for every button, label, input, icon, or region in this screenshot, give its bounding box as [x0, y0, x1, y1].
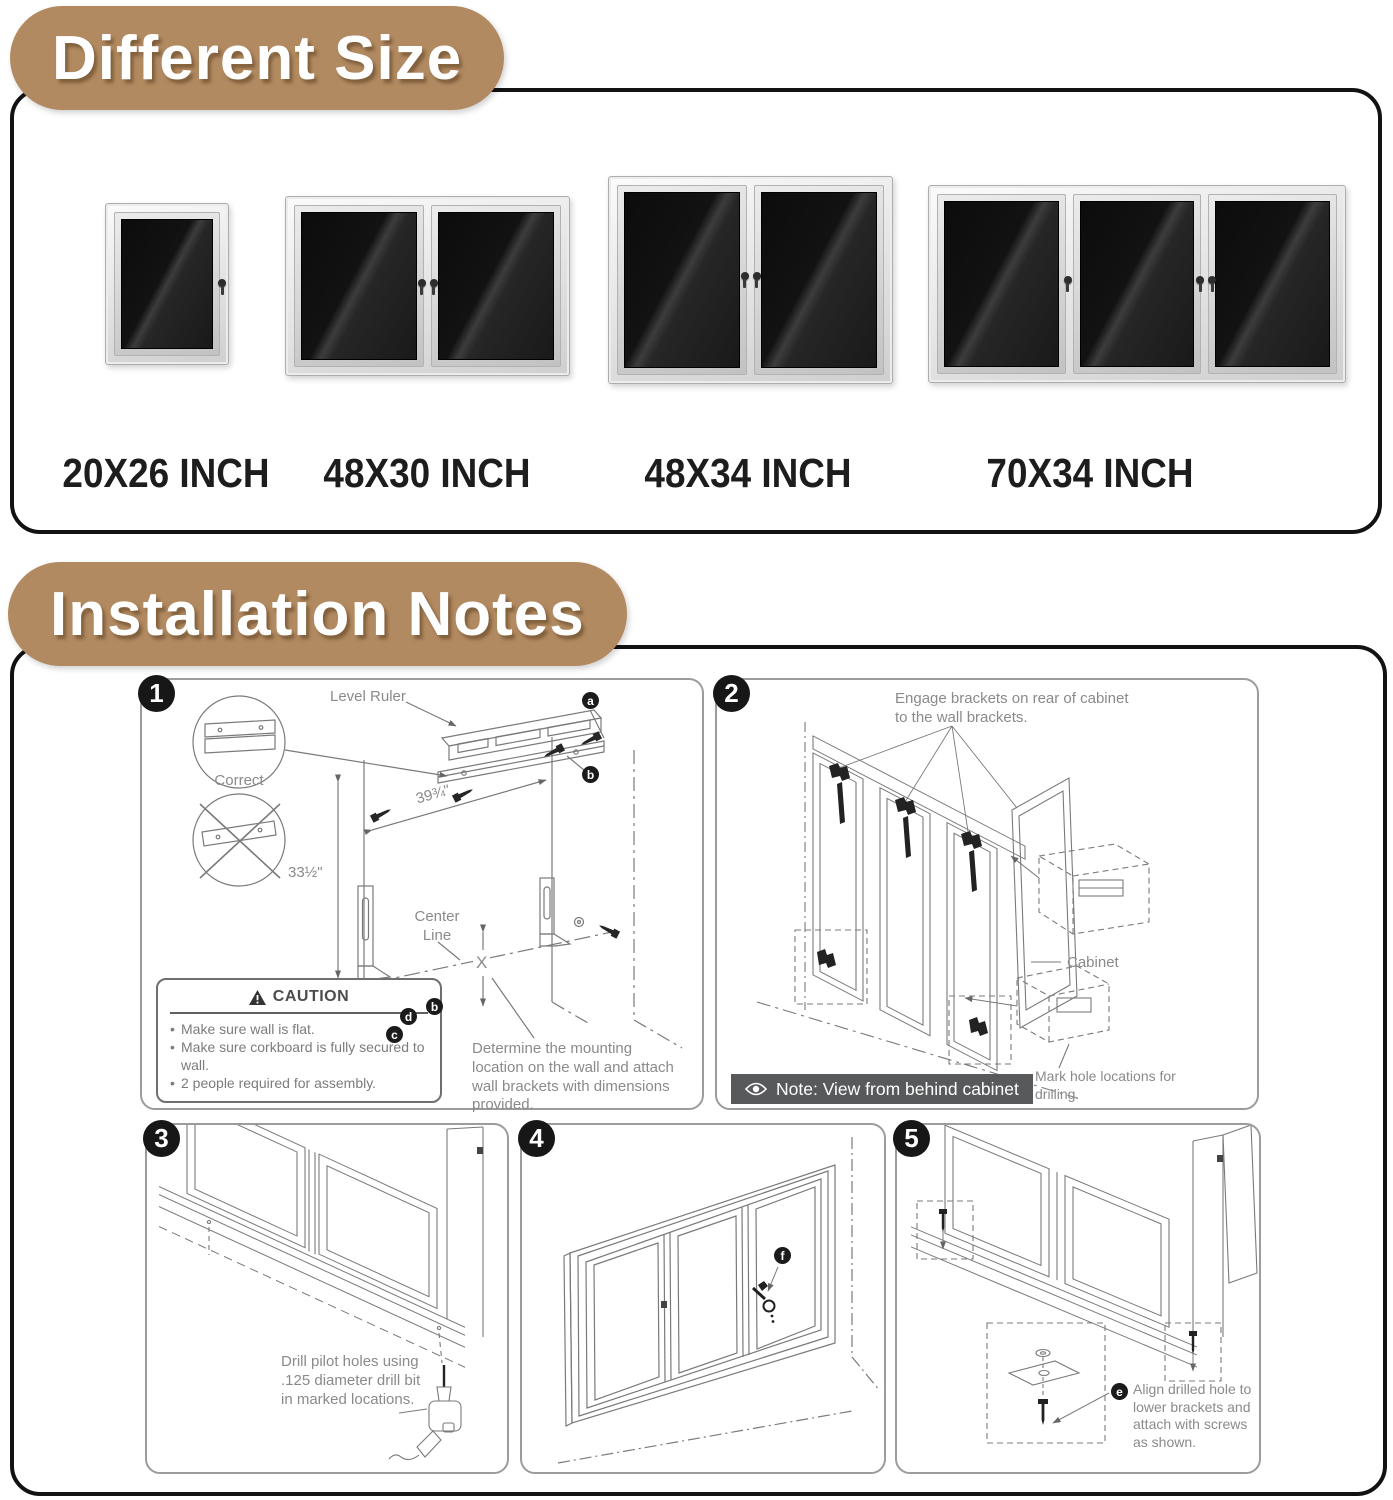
different-size-title-text: Different Size: [52, 23, 462, 94]
callout-c: c: [386, 1026, 403, 1043]
different-size-title: Different Size: [10, 6, 504, 110]
size-label-70x34: 70X34 INCH: [986, 450, 1193, 497]
letter-board-felt: [761, 192, 877, 368]
size-label-48x34: 48X34 INCH: [644, 450, 851, 497]
step1-number: 1: [138, 675, 175, 712]
step2-instruction: Engage brackets on rear of cabinet to th…: [895, 690, 1135, 728]
callout-b2: b: [426, 998, 443, 1015]
board-48x34: [608, 176, 893, 384]
mark-holes-instruction: Mark hole locations for drilling.: [1035, 1068, 1195, 1103]
cabinet-label: Cabinet: [1067, 954, 1119, 973]
callout-d: d: [400, 1008, 417, 1025]
step3-instruction: Drill pilot holes using .125 diameter dr…: [281, 1353, 421, 1409]
step5-instruction: Align drilled hole to lower brackets and…: [1133, 1381, 1255, 1451]
callout-f: f: [774, 1247, 791, 1264]
level-ruler-label: Level Ruler: [330, 688, 406, 707]
step2-number: 2: [713, 675, 750, 712]
board-door: [754, 185, 884, 375]
step3-panel: Drill pilot holes using .125 diameter dr…: [145, 1123, 509, 1474]
letter-board-felt: [1080, 201, 1195, 367]
step3-number: 3: [143, 1120, 180, 1157]
eye-icon: [745, 1082, 767, 1096]
step3-diagram: [147, 1125, 507, 1472]
board-70x34: [928, 185, 1346, 383]
installation-notes-title: Installation Notes: [8, 562, 627, 666]
letter-board-felt: [301, 212, 417, 360]
size-label-20x26: 20X26 INCH: [62, 450, 269, 497]
product-infographic: Different Size 20X26 INCH 48X30 INCH 48X…: [0, 0, 1393, 1500]
letter-board-felt: [1215, 201, 1330, 367]
board-door: [114, 212, 220, 356]
key-lock-icon: [430, 279, 438, 287]
divider: [170, 1012, 428, 1014]
step4-panel: f: [520, 1123, 886, 1474]
step2-panel: Engage brackets on rear of cabinet to th…: [715, 678, 1259, 1110]
board-door: [617, 185, 747, 375]
callout-a: a: [582, 692, 599, 709]
step5-number: 5: [893, 1120, 930, 1157]
board-20x26: [105, 203, 229, 365]
key-lock-icon: [753, 272, 761, 280]
caution-item: 2 people required for assembly.: [170, 1075, 428, 1093]
caution-item: Make sure corkboard is fully secured to …: [170, 1039, 428, 1075]
step1-panel: Level Ruler Correct 39¾" 33½" Center Lin…: [140, 678, 704, 1110]
step2-diagram: [717, 680, 1257, 1108]
board-door: [431, 205, 561, 367]
letter-board-felt: [438, 212, 554, 360]
installation-notes-title-text: Installation Notes: [50, 579, 585, 650]
view-note-text: Note: View from behind cabinet: [776, 1079, 1019, 1100]
key-lock-icon: [741, 272, 749, 280]
board-door: [1073, 194, 1202, 374]
board-door: [1208, 194, 1337, 374]
height-dimension: 33½": [288, 864, 323, 883]
board-door: [937, 194, 1066, 374]
correct-label: Correct: [204, 772, 274, 791]
letter-board-felt: [944, 201, 1059, 367]
step4-diagram: [522, 1125, 884, 1472]
board-door: [294, 205, 424, 367]
size-label-48x30: 48X30 INCH: [323, 450, 530, 497]
callout-e: e: [1111, 1383, 1128, 1400]
caution-title: CAUTION: [273, 988, 349, 1006]
callout-b: b: [582, 766, 599, 783]
bracket-icons: [817, 763, 988, 1036]
step4-number: 4: [518, 1120, 555, 1157]
key-lock-icon: [1196, 276, 1204, 284]
key-lock-icon: [218, 279, 226, 287]
board-48x30: [285, 196, 570, 376]
x-mark-label: X: [473, 952, 490, 973]
letter-board-felt: [624, 192, 740, 368]
warning-icon: [249, 990, 266, 1005]
step1-instruction: Determine the mounting location on the w…: [472, 1040, 680, 1115]
step5-panel: e Align drilled hole to lower brackets a…: [895, 1123, 1261, 1474]
view-note-bar: Note: View from behind cabinet: [731, 1074, 1033, 1104]
center-line-label: Center Line: [400, 908, 474, 946]
letter-board-felt: [121, 219, 213, 349]
key-lock-icon: [418, 279, 426, 287]
key-lock-icon: [1064, 276, 1072, 284]
